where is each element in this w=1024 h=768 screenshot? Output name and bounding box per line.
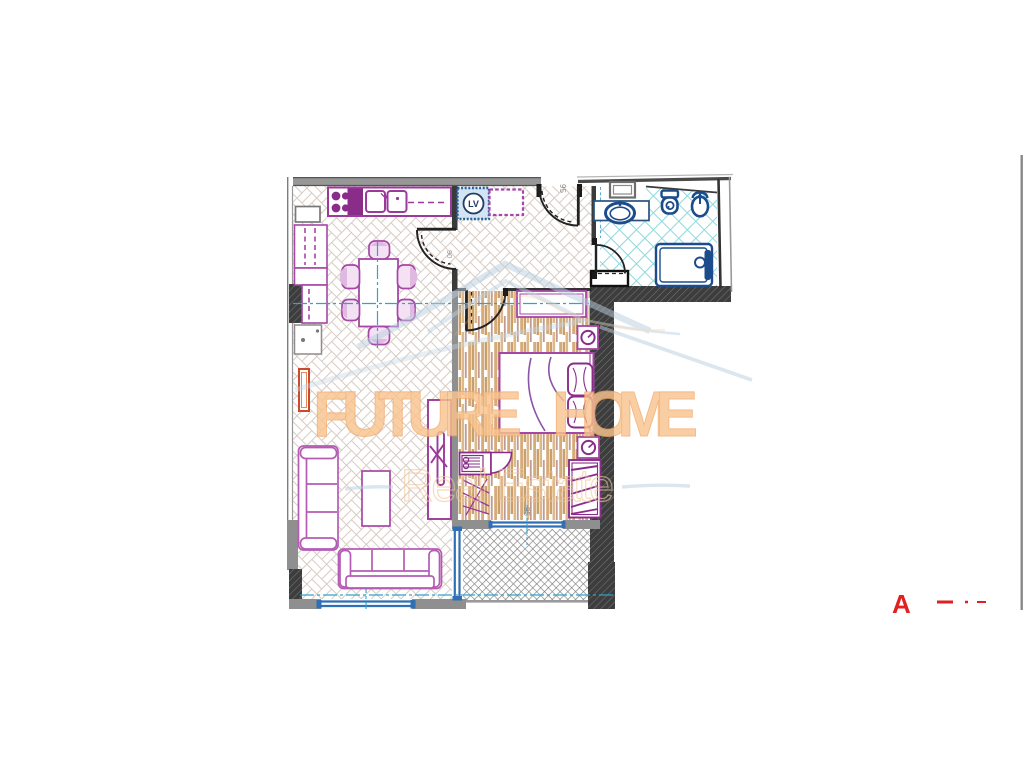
svg-text:A: A (892, 589, 911, 619)
svg-text:LV: LV (468, 199, 479, 209)
svg-text:FUTURE: FUTURE (313, 378, 522, 450)
svg-text:Real Estate: Real Estate (401, 460, 615, 511)
svg-text:95: 95 (558, 184, 567, 193)
svg-text:HOME: HOME (552, 378, 698, 450)
svg-text:90: 90 (445, 250, 454, 258)
